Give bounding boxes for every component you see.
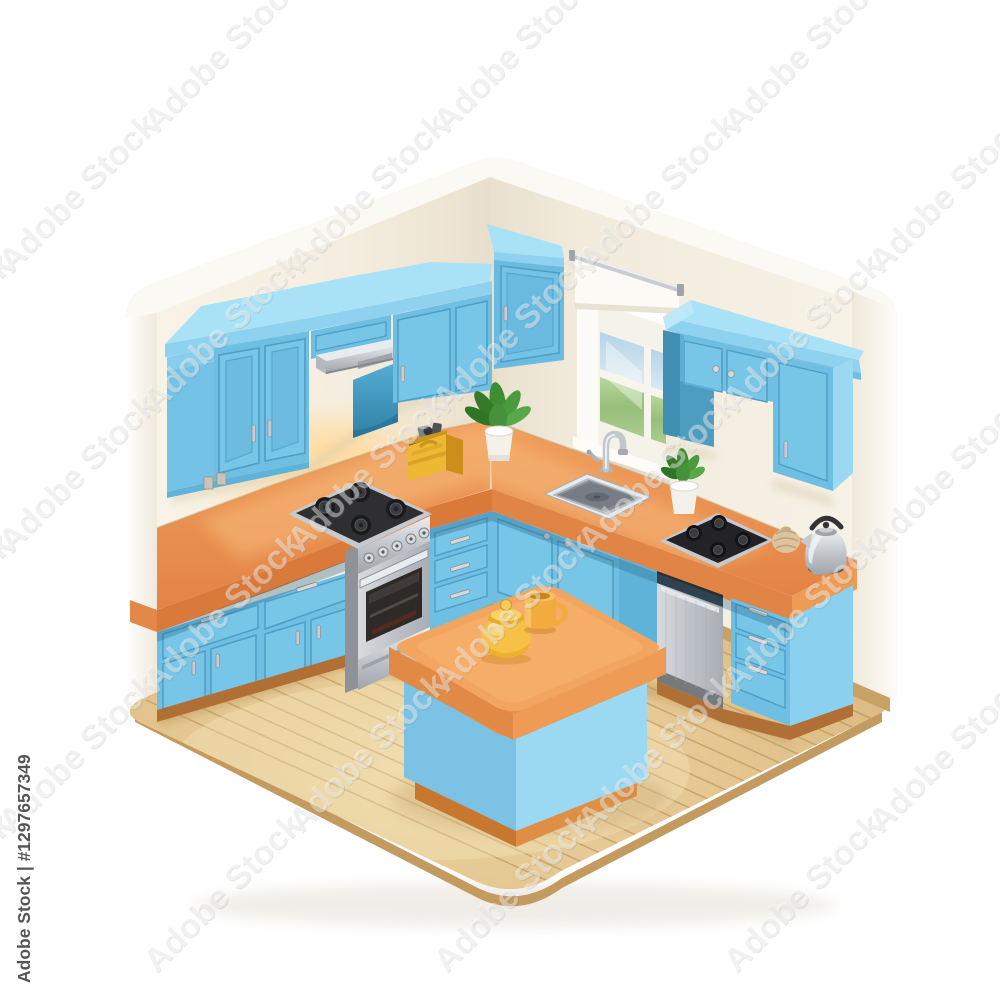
svg-text:Adobe Stock | #1297657349: Adobe Stock | #1297657349 bbox=[14, 754, 34, 983]
